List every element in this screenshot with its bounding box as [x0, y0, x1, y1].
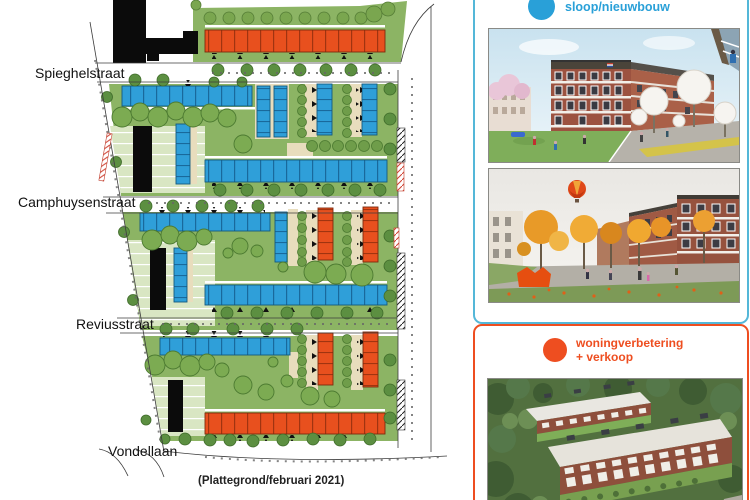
legend-label-woningverbetering: woningverbetering + verkoop: [576, 336, 683, 364]
blue-legend-dot-icon: [528, 0, 555, 20]
orange-legend-dot-icon: [543, 338, 567, 362]
street-label-reviusstraat: Reviusstraat: [76, 316, 154, 332]
page: Spieghelstraat Camphuysenstraat Reviusst…: [0, 0, 750, 500]
legend-line-2: + verkoop: [576, 350, 633, 364]
artist-impression-new-apartments-spring: [488, 28, 740, 163]
street-label-vondellaan: Vondellaan: [108, 443, 177, 459]
panel-sloop-nieuwbouw: sloop/nieuwbouw: [473, 0, 749, 324]
legend-woningverbetering: woningverbetering + verkoop: [543, 336, 683, 364]
plan-caption: (Plattegrond/februari 2021): [198, 475, 345, 487]
dutch-flag-icon: [607, 63, 613, 67]
legend-sloop-nieuwbouw: sloop/nieuwbouw: [528, 0, 670, 20]
street-label-camphuysenstraat: Camphuysenstraat: [18, 194, 136, 210]
legend-line-1: woningverbetering: [576, 336, 683, 350]
street-label-spieghelstraat: Spieghelstraat: [35, 65, 125, 81]
aerial-photo-renovated-row-houses: [487, 378, 743, 500]
panel-woningverbetering: woningverbetering + verkoop: [473, 324, 749, 500]
site-plan-map: Spieghelstraat Camphuysenstraat Reviusst…: [0, 0, 470, 500]
legend-label-sloop-nieuwbouw: sloop/nieuwbouw: [565, 0, 670, 14]
artist-impression-new-apartments-autumn: [488, 168, 740, 303]
